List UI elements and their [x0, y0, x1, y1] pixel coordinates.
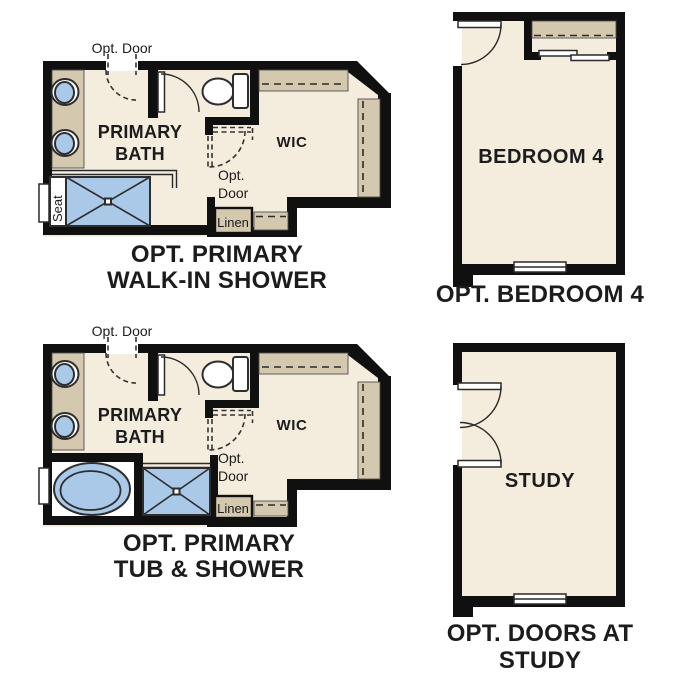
floorplan-canvas: Opt. Door PRIMARY BATH WIC Opt. Door Lin… [0, 0, 687, 687]
wall-toilet-stub [148, 353, 158, 401]
toilet-tank-icon [233, 74, 248, 108]
room-label-bedroom4: BEDROOM 4 [478, 146, 604, 168]
plan-caption: OPT. PRIMARY [123, 530, 295, 557]
door-leaf [158, 355, 165, 395]
opt-door-label: Door [218, 185, 249, 201]
plan-caption: STUDY [499, 647, 581, 674]
floorplan-options-figure: Opt. Door PRIMARY BATH WIC Opt. Door Lin… [0, 0, 687, 687]
door-leaf [458, 383, 501, 390]
wall-segment [205, 117, 259, 125]
door-leaf [458, 461, 501, 468]
room-label-bath: BATH [115, 427, 165, 447]
wall-segment [205, 400, 259, 408]
wic-label: WIC [277, 134, 308, 151]
opt-door-label: Opt. Door [92, 323, 153, 339]
wic-shelf-right [358, 382, 380, 479]
wall-segment [616, 12, 625, 275]
wall-tub-alcove [43, 453, 143, 462]
door-opening [453, 385, 462, 465]
wall-segment [250, 70, 259, 125]
plan-tub-shower: Opt. Door PRIMARY BATH WIC Opt. Door Lin… [39, 323, 391, 583]
opt-door-label: Opt. [218, 450, 244, 466]
room-label-bath: BATH [115, 144, 165, 164]
wall-toilet-stub [148, 70, 158, 118]
wic-shelf-right [358, 99, 380, 197]
wall-corner-notch [453, 596, 473, 617]
optional-door-opening [106, 343, 138, 354]
optional-door-opening [106, 60, 138, 71]
opt-door-label: Door [218, 468, 249, 484]
window [39, 184, 49, 222]
shower-drain [174, 489, 180, 495]
room-label-primary: PRIMARY [98, 405, 182, 425]
plan-study: STUDY OPT. DOORS AT STUDY [447, 343, 634, 674]
wall-segment [205, 400, 213, 418]
linen-shelf [254, 212, 288, 230]
seat-label: Seat [50, 195, 65, 222]
wic-shelf-top [259, 353, 348, 374]
room-label-study: STUDY [505, 470, 575, 492]
door-leaf [458, 21, 501, 28]
wall-tub-alcove [134, 453, 143, 516]
closet-bypass-door [571, 55, 609, 61]
plan-caption: OPT. PRIMARY [131, 241, 303, 268]
wall-segment [43, 516, 218, 525]
plan-caption: OPT. BEDROOM 4 [436, 281, 645, 308]
sink-bowl-icon [55, 416, 74, 437]
plan-caption: WALK-IN SHOWER [107, 267, 327, 294]
wall-segment [43, 61, 357, 70]
wall-segment [616, 343, 625, 607]
plan-caption: TUB & SHOWER [114, 556, 304, 583]
wall-segment [205, 117, 213, 135]
wall-segment [287, 197, 391, 208]
sink-bowl-icon [55, 82, 74, 103]
door-leaf [158, 72, 165, 112]
wall-segment [287, 479, 391, 490]
opt-door-label: Opt. Door [92, 40, 153, 56]
wall-segment [380, 93, 391, 208]
sink-bowl-icon [55, 364, 74, 385]
wall-segment [250, 353, 259, 408]
linen-label: Linen [217, 501, 249, 516]
wall-segment [43, 344, 357, 353]
window [39, 468, 49, 504]
room-label-primary: PRIMARY [98, 122, 182, 142]
wall-segment [380, 376, 391, 490]
linen-shelf [254, 501, 288, 516]
plan-walkin-shower: Opt. Door PRIMARY BATH WIC Opt. Door Lin… [39, 40, 391, 294]
toilet-bowl-icon [203, 362, 234, 388]
wic-label: WIC [277, 417, 308, 434]
wic-shelf-top [259, 70, 348, 91]
toilet-tank-icon [233, 357, 248, 391]
plan-bedroom4: BEDROOM 4 OPT. BEDROOM 4 [436, 12, 645, 308]
wall-segment [453, 343, 625, 352]
shower-drain [105, 199, 111, 205]
sink-bowl-icon [55, 133, 74, 154]
linen-label: Linen [217, 215, 249, 230]
wall-segment [453, 12, 625, 21]
toilet-bowl-icon [203, 79, 234, 105]
opt-door-label: Opt. [218, 167, 244, 183]
plan-caption: OPT. DOORS AT [447, 620, 634, 647]
